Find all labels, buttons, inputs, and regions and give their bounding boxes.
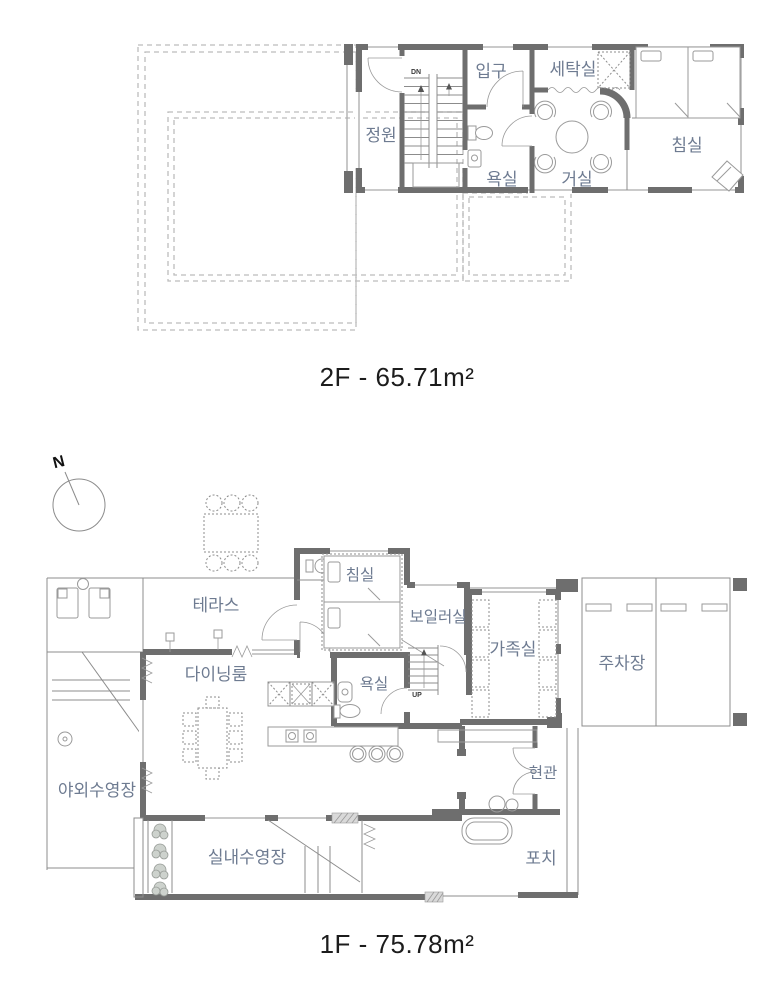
dining-table-set (183, 697, 242, 779)
room-label-boiler: 보일러실 (409, 608, 466, 626)
room-label-outdoor-pool: 야외수영장 (58, 781, 137, 800)
floor2-stairs: DN (404, 69, 463, 187)
floor2-beds (636, 47, 740, 118)
room-label-porch: 포치 (525, 849, 556, 868)
outdoor-pool (52, 652, 143, 746)
floor1-bathroom-fixtures (334, 682, 360, 718)
floor2-plan: DN (138, 43, 745, 392)
living-chair (535, 155, 556, 173)
north-label: N (51, 453, 66, 472)
room-label-bedroom-2f: 침실 (671, 136, 702, 155)
porch-bench (462, 818, 512, 844)
floor1-stairs: UP (402, 640, 466, 699)
room-label-family: 가족실 (490, 640, 537, 659)
room-label-entry: 현관 (529, 764, 558, 782)
floor2-living-table (535, 101, 612, 173)
floor2-stair-label: DN (411, 69, 421, 76)
floor1-stair-label: UP (412, 692, 422, 699)
floorplan-drawing: DN (0, 0, 779, 988)
living-chair (590, 155, 611, 173)
floor1-plan: N (47, 453, 747, 959)
room-label-laundry: 세탁실 (550, 60, 597, 79)
outdoor-table-set (204, 495, 258, 571)
living-chair (591, 101, 612, 119)
room-label-terrace: 테라스 (193, 596, 240, 615)
floor2-closet (598, 52, 630, 88)
floorplan-page: DN (0, 0, 779, 988)
lounge-chairs (57, 579, 110, 619)
living-chair (535, 101, 556, 119)
room-label-indoor-pool: 실내수영장 (208, 848, 287, 867)
room-label-living: 거실 (561, 170, 592, 189)
room-label-parking: 주차장 (599, 654, 646, 673)
room-label-dining: 다이닝룸 (185, 665, 248, 684)
floor2-caption: 2F - 65.71m² (320, 362, 475, 392)
room-label-bedroom-1f: 침실 (346, 566, 375, 584)
parking-area (582, 578, 747, 726)
room-label-bathroom-2f: 욕실 (486, 170, 517, 189)
entry-furniture (438, 730, 537, 812)
room-label-entrance-2f: 입구 (475, 62, 506, 81)
north-compass-icon: N (51, 453, 105, 531)
terrace-posts (166, 630, 222, 652)
hatch-block (332, 813, 358, 823)
plants (152, 824, 168, 896)
floor1-caption: 1F - 75.78m² (320, 929, 475, 959)
floor2-bathroom-fixtures (468, 126, 493, 167)
room-label-garden: 정원 (365, 126, 396, 145)
room-label-bathroom-1f: 욕실 (360, 675, 389, 693)
hatch-strip (425, 892, 443, 902)
